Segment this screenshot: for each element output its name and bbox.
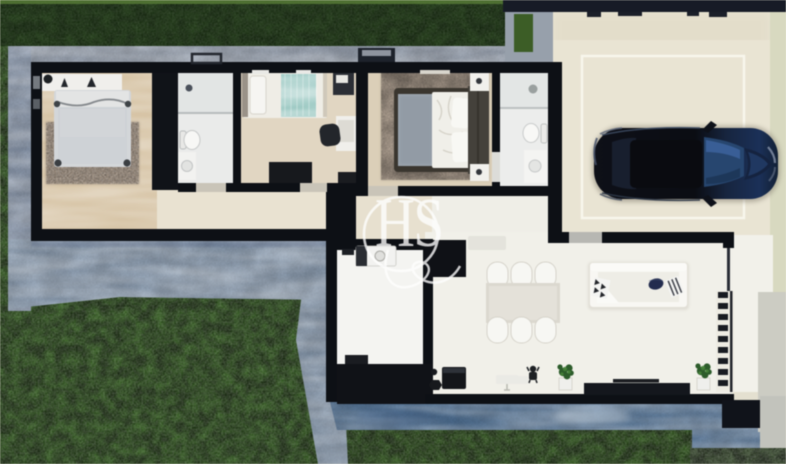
svg-text:HS: HS (375, 184, 443, 262)
